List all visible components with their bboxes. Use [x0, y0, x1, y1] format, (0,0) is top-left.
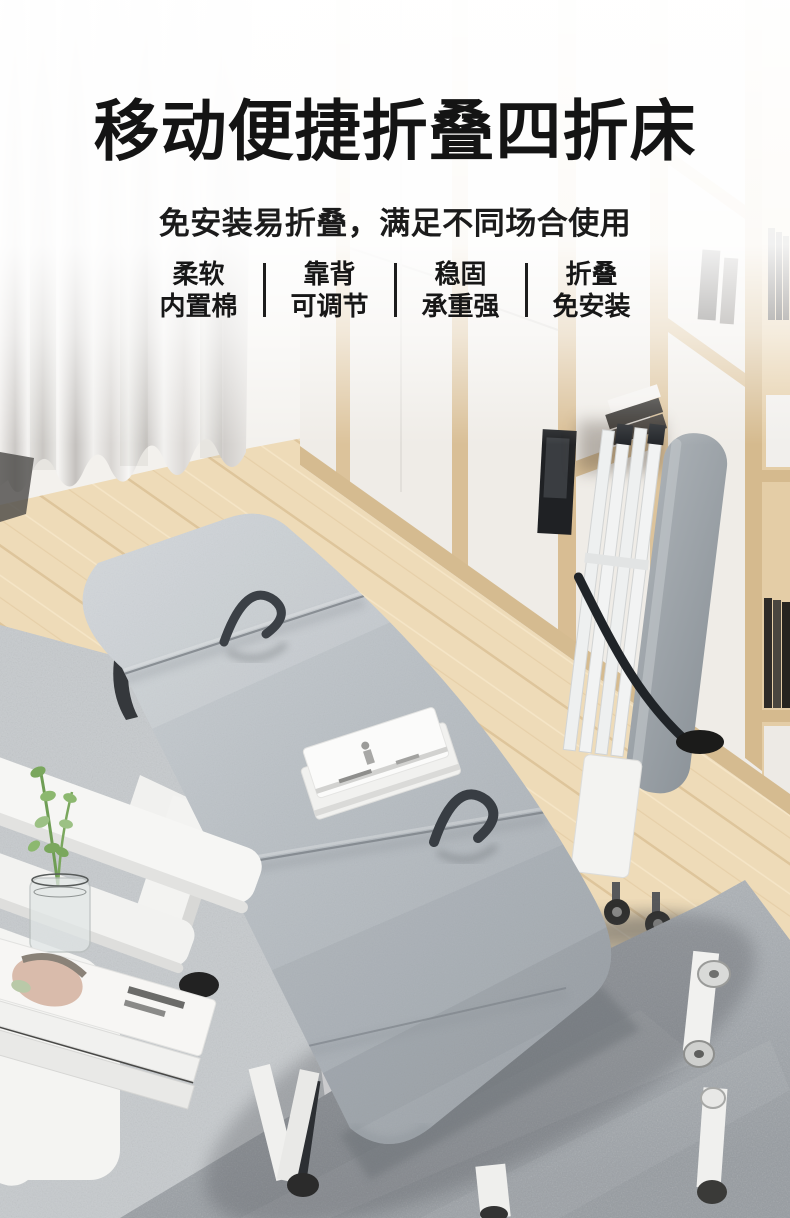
- page-title: 移动便捷折叠四折床: [0, 98, 790, 164]
- feature-divider: [263, 263, 266, 317]
- feature-foldable: 折叠 免安装: [539, 258, 645, 322]
- feature-divider: [525, 263, 528, 317]
- room-photo: [0, 0, 790, 1218]
- product-hero-image: 移动便捷折叠四折床 免安装易折叠，满足不同场合使用 柔软 内置棉 靠背 可调节 …: [0, 0, 790, 1218]
- feature-divider: [394, 263, 397, 317]
- caster-wheel: [287, 1173, 319, 1197]
- feature-sturdy: 稳固 承重强: [408, 258, 514, 322]
- rubber-foot: [676, 730, 724, 754]
- caster-wheel: [697, 1180, 727, 1204]
- page-subtitle: 免安装易折叠，满足不同场合使用: [0, 198, 790, 243]
- feature-soft: 柔软 内置棉: [146, 258, 252, 322]
- feature-list: 柔软 内置棉 靠背 可调节 稳固 承重强 折叠 免安装: [0, 258, 790, 322]
- feature-backrest: 靠背 可调节: [277, 258, 383, 322]
